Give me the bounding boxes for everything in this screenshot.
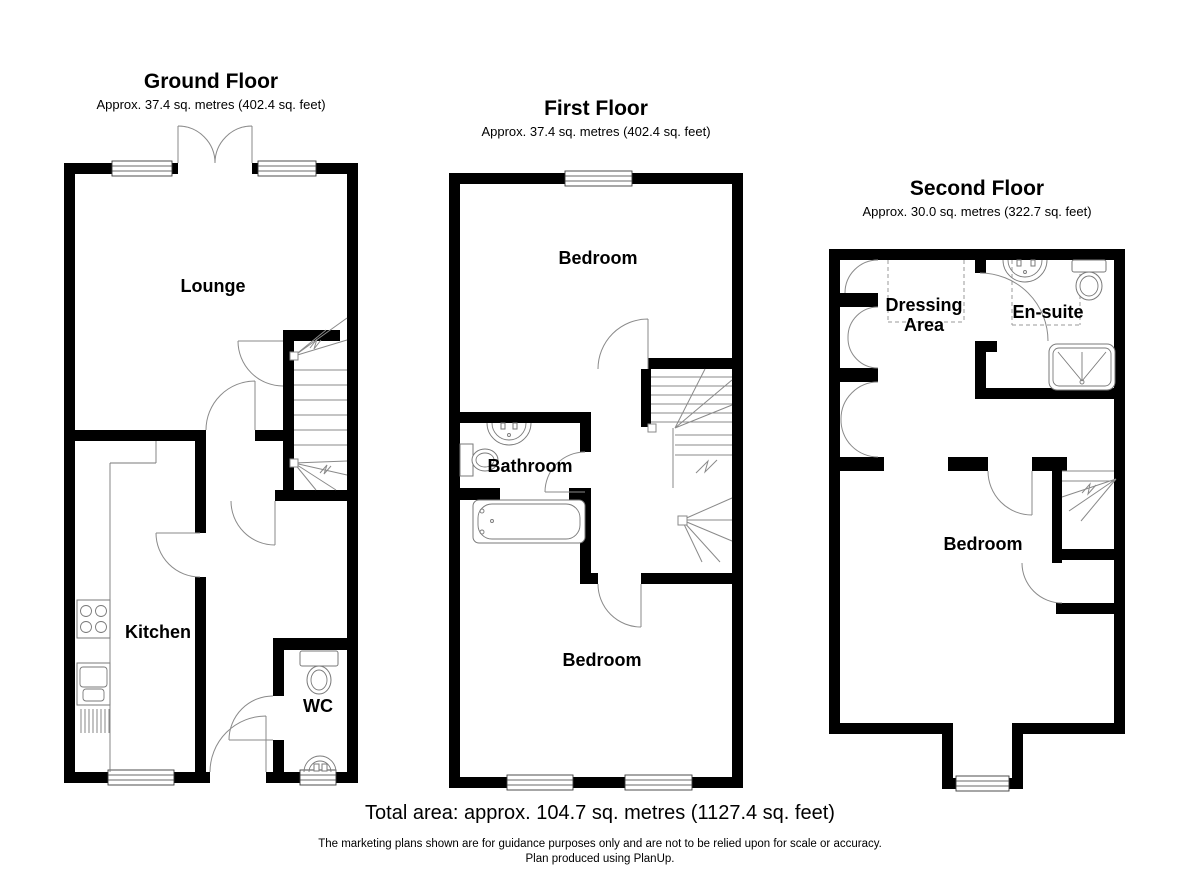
first-floor-title-block: First Floor Approx. 37.4 sq. metres (402…	[446, 97, 746, 139]
room-label-lounge: Lounge	[181, 277, 246, 297]
second-floor-title-block: Second Floor Approx. 30.0 sq. metres (32…	[827, 177, 1127, 219]
first-floor-title: First Floor	[446, 97, 746, 121]
toilet-cistern	[460, 444, 473, 476]
room-label-bedroom-back: Bedroom	[562, 651, 641, 671]
room-label-kitchen: Kitchen	[125, 623, 191, 643]
bathroom-sink	[487, 423, 531, 445]
first-floor-plan: Bedroom Bathroom Bedroom	[449, 169, 743, 793]
ensuite-sink	[1003, 260, 1047, 282]
kitchen-counter	[77, 441, 156, 772]
ground-floor-title: Ground Floor	[61, 70, 361, 94]
room-label-bedroom-front: Bedroom	[558, 249, 637, 269]
second-floor-plan: Dressing Area En-suite Bedroom	[829, 249, 1125, 794]
room-label-bathroom: Bathroom	[488, 457, 573, 477]
second-stairs	[1062, 471, 1116, 521]
room-label-dressing-area: Dressing Area	[869, 296, 979, 336]
second-windows	[956, 776, 1009, 791]
bath-tub	[473, 500, 585, 543]
total-area-text: Total area: approx. 104.7 sq. metres (11…	[0, 802, 1200, 825]
ground-floor-plan: Lounge Kitchen WC	[64, 118, 358, 788]
disclaimer-line-2: Plan produced using PlanUp.	[0, 849, 1200, 867]
ground-stairs	[290, 318, 347, 490]
ground-doors	[156, 341, 283, 772]
toilet-cistern	[1072, 260, 1106, 272]
toilet-cistern	[300, 651, 338, 666]
hob	[77, 600, 110, 638]
second-floor-area: Approx. 30.0 sq. metres (322.7 sq. feet)	[827, 204, 1127, 219]
floorplan-page: Ground Floor Approx. 37.4 sq. metres (40…	[0, 0, 1200, 873]
second-floor-title: Second Floor	[827, 177, 1127, 201]
room-label-wc: WC	[303, 697, 333, 717]
ground-floor-drawing	[64, 118, 358, 788]
room-label-ensuite: En-suite	[1012, 303, 1083, 323]
french-doors	[178, 126, 252, 163]
first-floor-area: Approx. 37.4 sq. metres (402.4 sq. feet)	[446, 124, 746, 139]
bathroom-fixtures	[460, 423, 585, 543]
ground-floor-area: Approx. 37.4 sq. metres (402.4 sq. feet)	[61, 97, 361, 112]
kitchen-sink	[77, 663, 110, 705]
room-label-bedroom-second: Bedroom	[943, 535, 1022, 555]
ground-floor-title-block: Ground Floor Approx. 37.4 sq. metres (40…	[61, 70, 361, 112]
first-stairs	[648, 369, 732, 562]
